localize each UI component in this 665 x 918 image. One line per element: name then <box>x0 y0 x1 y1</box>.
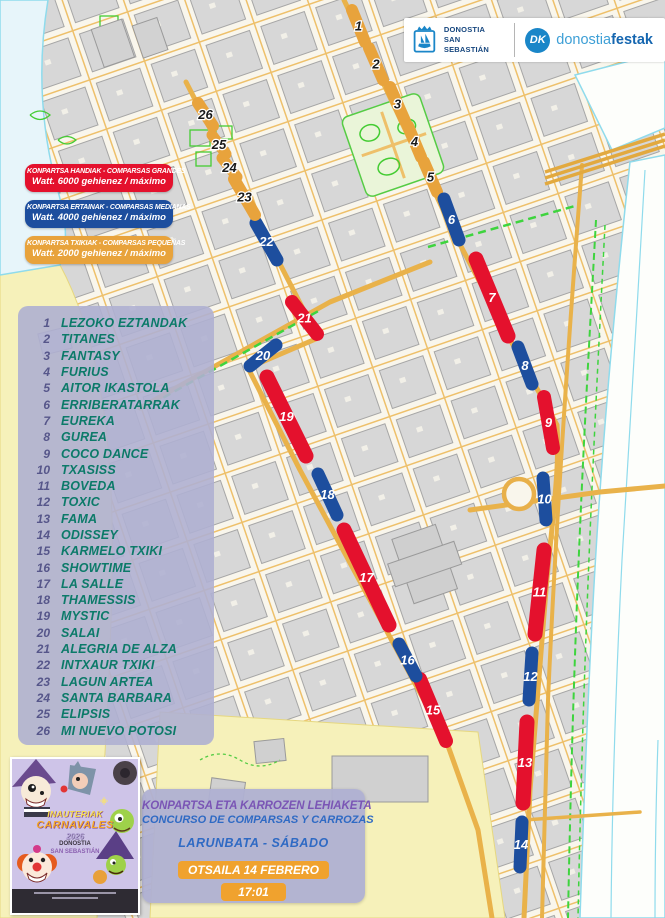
route-segment-number-16: 16 <box>400 653 415 668</box>
participant-number: 8 <box>18 430 50 444</box>
participant-number: 16 <box>18 561 50 575</box>
route-segment-number-22: 22 <box>258 234 274 249</box>
participant-name: THAMESSIS <box>61 593 136 607</box>
participant-name: TOXIC <box>61 495 100 509</box>
participant-number: 18 <box>18 593 50 607</box>
list-item: 12TOXIC <box>18 494 214 510</box>
route-segment-number-24: 24 <box>221 160 237 175</box>
participant-number: 3 <box>18 349 50 363</box>
participant-number: 12 <box>18 495 50 509</box>
list-item: 18THAMESSIS <box>18 592 214 608</box>
list-item: 24SANTA BARBARA <box>18 690 214 706</box>
list-item: 26MI NUEVO POTOSI <box>18 722 214 738</box>
participant-number: 9 <box>18 447 50 461</box>
participant-number: 19 <box>18 609 50 623</box>
legend-medianas: KONPARTSA ERTAINAK - COMPARSAS MEDIANAS … <box>25 200 173 228</box>
event-date-badge: OTSAILA 14 FEBRERO <box>178 861 329 879</box>
participants-panel: 1LEZOKO EZTANDAK2TITANES3FANTASY4FURIUS5… <box>18 306 214 745</box>
route-segment-number-19: 19 <box>279 409 294 424</box>
participant-number: 10 <box>18 463 50 477</box>
list-item: 7EUREKA <box>18 413 214 429</box>
city-logo-line1: DONOSTIA <box>444 25 505 35</box>
participant-name: ERRIBERATARRAK <box>61 398 180 412</box>
participant-name: LEZOKO EZTANDAK <box>61 316 187 330</box>
event-title-eu: KONPARTSA ETA KARROZEN LEHIAKETA <box>142 800 365 812</box>
header-logos: DONOSTIA SAN SEBASTIÁN DK donostiafestak <box>404 18 665 62</box>
participant-number: 4 <box>18 365 50 379</box>
participant-number: 15 <box>18 544 50 558</box>
list-item: 3FANTASY <box>18 348 214 364</box>
legend-grandes: KONPARTSA HANDIAK - COMPARSAS GRANDES Wa… <box>25 164 173 192</box>
poster-city-line1: DONOSTIA <box>12 841 138 848</box>
list-item: 5AITOR IKASTOLA <box>18 380 214 396</box>
participant-name: EUREKA <box>61 414 115 428</box>
participant-name: SANTA BARBARA <box>61 691 172 705</box>
event-info-panel: KONPARTSA ETA KARROZEN LEHIAKETA CONCURS… <box>142 789 365 903</box>
participant-number: 14 <box>18 528 50 542</box>
list-item: 15KARMELO TXIKI <box>18 543 214 559</box>
participant-number: 26 <box>18 724 50 738</box>
participant-name: FANTASY <box>61 349 120 363</box>
participant-number: 22 <box>18 658 50 672</box>
city-crest-icon <box>411 23 438 57</box>
route-segment-number-13: 13 <box>518 755 533 770</box>
list-item: 16SHOWTIME <box>18 559 214 575</box>
participant-number: 17 <box>18 577 50 591</box>
route-segment-number-7: 7 <box>488 290 496 305</box>
list-item: 10TXASISS <box>18 462 214 478</box>
route-segment-number-4: 4 <box>410 134 419 149</box>
list-item: 22INTXAUR TXIKI <box>18 657 214 673</box>
city-hall-logo: DONOSTIA SAN SEBASTIÁN <box>404 18 514 62</box>
list-item: 14ODISSEY <box>18 527 214 543</box>
route-segment-number-10: 10 <box>537 492 552 507</box>
list-item: 13FAMA <box>18 511 214 527</box>
route-segment-number-12: 12 <box>523 669 538 684</box>
route-segment-number-23: 23 <box>236 190 252 205</box>
participant-name: MYSTIC <box>61 609 109 623</box>
list-item: 8GUREA <box>18 429 214 445</box>
list-item: 9COCO DANCE <box>18 445 214 461</box>
list-item: 2TITANES <box>18 331 214 347</box>
festak-logo-text: donostiafestak <box>556 32 653 48</box>
participant-number: 23 <box>18 675 50 689</box>
list-item: 17LA SALLE <box>18 576 214 592</box>
participant-name: LAGUN ARTEA <box>61 675 153 689</box>
route-segment-number-5: 5 <box>427 170 435 185</box>
participant-name: INTXAUR TXIKI <box>61 658 155 672</box>
route-segment-number-21: 21 <box>296 311 311 326</box>
route-segment-number-17: 17 <box>359 570 374 585</box>
route-segment-number-14: 14 <box>514 837 529 852</box>
poster-text: INAUTERIAK CARNAVALES 2026 DONOSTIA SAN … <box>12 809 138 856</box>
participant-number: 2 <box>18 332 50 346</box>
route-segment-number-3: 3 <box>394 97 402 112</box>
participant-name: ALEGRIA DE ALZA <box>61 642 177 656</box>
list-item: 11BOVEDA <box>18 478 214 494</box>
route-segment-number-20: 20 <box>255 348 271 363</box>
participant-name: LA SALLE <box>61 577 123 591</box>
list-item: 4FURIUS <box>18 364 214 380</box>
participant-name: SALAI <box>61 626 100 640</box>
participant-number: 1 <box>18 316 50 330</box>
poster-footer <box>12 889 138 913</box>
participant-name: SHOWTIME <box>61 561 131 575</box>
list-item: 1LEZOKO EZTANDAK <box>18 315 214 331</box>
participant-number: 5 <box>18 381 50 395</box>
carnival-poster: INAUTERIAK CARNAVALES 2026 DONOSTIA SAN … <box>10 757 140 915</box>
participant-number: 20 <box>18 626 50 640</box>
list-item: 19MYSTIC <box>18 608 214 624</box>
participants-list: 1LEZOKO EZTANDAK2TITANES3FANTASY4FURIUS5… <box>18 315 214 739</box>
event-time-badge: 17:01 <box>221 883 286 901</box>
participant-name: ODISSEY <box>61 528 118 542</box>
list-item: 21ALEGRIA DE ALZA <box>18 641 214 657</box>
route-segment-number-18: 18 <box>320 487 335 502</box>
city-logo-line2: SAN SEBASTIÁN <box>444 35 505 55</box>
route-segment-number-2: 2 <box>371 57 380 72</box>
route-segment-number-25: 25 <box>211 137 227 152</box>
route-segment-number-15: 15 <box>426 703 441 718</box>
poster-title-eu: INAUTERIAK <box>12 809 138 819</box>
category-legend: KONPARTSA HANDIAK - COMPARSAS GRANDES Wa… <box>25 164 173 272</box>
legend-pequenas: KONPARTSA TXIKIAK - COMPARSAS PEQUEÑAS W… <box>25 236 173 264</box>
event-title-es: CONCURSO DE COMPARSAS Y CARROZAS <box>142 814 365 826</box>
participant-name: GUREA <box>61 430 107 444</box>
list-item: 25ELIPSIS <box>18 706 214 722</box>
route-segment-number-9: 9 <box>545 415 553 430</box>
poster-title-es: CARNAVALES <box>12 819 138 832</box>
participant-number: 21 <box>18 642 50 656</box>
cannon-icon <box>113 761 137 785</box>
route-segment-number-1: 1 <box>355 19 362 34</box>
participant-name: TITANES <box>61 332 115 346</box>
list-item: 6ERRIBERATARRAK <box>18 396 214 412</box>
dk-monogram-icon: DK <box>525 28 550 53</box>
roundabout <box>504 479 534 509</box>
route-segment-number-26: 26 <box>197 107 213 122</box>
participant-number: 7 <box>18 414 50 428</box>
route-segment-number-8: 8 <box>521 358 529 373</box>
participant-number: 11 <box>18 479 50 493</box>
poster-year: 2026 <box>12 832 138 842</box>
participant-name: TXASISS <box>61 463 116 477</box>
participant-name: ELIPSIS <box>61 707 110 721</box>
list-item: 23LAGUN ARTEA <box>18 674 214 690</box>
participant-name: FAMA <box>61 512 97 526</box>
participant-name: BOVEDA <box>61 479 116 493</box>
participant-name: KARMELO TXIKI <box>61 544 162 558</box>
participant-number: 25 <box>18 707 50 721</box>
parade-route-map-page: 1234567891011121314151617181920212223242… <box>0 0 665 918</box>
participant-name: MI NUEVO POTOSI <box>61 724 176 738</box>
participant-name: COCO DANCE <box>61 447 148 461</box>
participant-number: 13 <box>18 512 50 526</box>
participant-number: 24 <box>18 691 50 705</box>
participant-name: AITOR IKASTOLA <box>61 381 170 395</box>
event-day: LARUNBATA - SÁBADO <box>142 836 365 850</box>
poster-city-line2: SAN SEBASTIÁN <box>12 849 138 856</box>
participant-name: FURIUS <box>61 365 109 379</box>
list-item: 20SALAI <box>18 625 214 641</box>
route-segment-number-11: 11 <box>533 585 547 600</box>
route-segment-number-6: 6 <box>448 212 456 227</box>
participant-number: 6 <box>18 398 50 412</box>
festak-logo: DK donostiafestak <box>515 18 665 62</box>
